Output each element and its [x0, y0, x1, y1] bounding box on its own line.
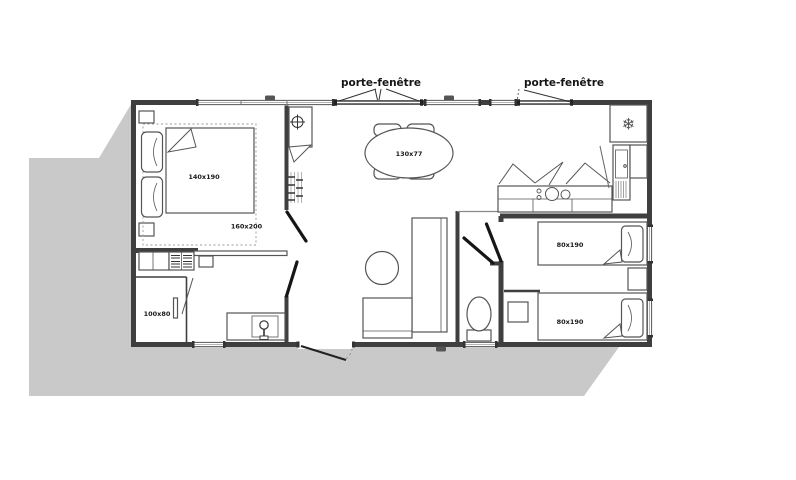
snowflake-icon: ❄ — [622, 117, 635, 134]
pillow — [142, 132, 163, 172]
drawer-unit — [169, 252, 194, 270]
toilet-base — [467, 330, 491, 341]
kitchen-counter — [498, 186, 612, 212]
vanity-cabinet — [139, 252, 169, 270]
shower-door-handle — [174, 298, 178, 318]
pillow — [622, 226, 644, 262]
floor-plan-svg: 140x190 160x200 100x8 — [0, 0, 796, 480]
pouf — [366, 252, 399, 285]
window-wc — [463, 341, 498, 348]
side-cabinet — [139, 223, 154, 236]
pillow — [142, 177, 163, 217]
washbasin-unit — [227, 313, 285, 340]
roof-vent-1 — [265, 96, 275, 101]
sink-bowl — [546, 188, 559, 201]
porte-fenetre-label-1: porte-fenêtre — [341, 77, 421, 89]
counter-shelf — [194, 251, 287, 256]
side-unit — [630, 145, 647, 178]
shower-dim-label: 100x80 — [144, 310, 171, 318]
wall-cabinet — [139, 111, 154, 123]
leader-line-2-dashed — [517, 89, 519, 101]
dining-table-dim-label: 130x77 — [396, 150, 423, 158]
floor-plan-page: 140x190 160x200 100x8 — [0, 0, 796, 480]
basin-tap-icon — [260, 321, 268, 329]
annotations: porte-fenêtre porte-fenêtre — [339, 77, 604, 102]
window-living-2 — [489, 99, 517, 106]
nightstand — [628, 268, 647, 290]
window-master-top — [196, 99, 335, 106]
wc-room — [467, 297, 491, 341]
roof-vent-2 — [444, 96, 454, 101]
corner-box — [508, 302, 528, 322]
master-bed-dim-label: 140x190 — [188, 173, 220, 181]
floor-vent — [436, 347, 446, 352]
pillow — [622, 299, 644, 337]
single-bed-2-dim-label: 80x190 — [557, 318, 584, 326]
shelf-box — [199, 256, 213, 267]
window-bathroom — [192, 341, 226, 348]
leader-lines-1 — [339, 89, 419, 101]
master-bed-outline-dim-label: 160x200 — [231, 223, 263, 231]
fridge: ❄ — [610, 105, 647, 142]
toilet-bowl — [467, 297, 491, 331]
sink-drainer — [561, 190, 570, 199]
single-bed-1-dim-label: 80x190 — [557, 241, 584, 249]
porte-fenetre-label-2: porte-fenêtre — [524, 77, 604, 89]
porte-fenetre-door-1 — [334, 99, 423, 105]
